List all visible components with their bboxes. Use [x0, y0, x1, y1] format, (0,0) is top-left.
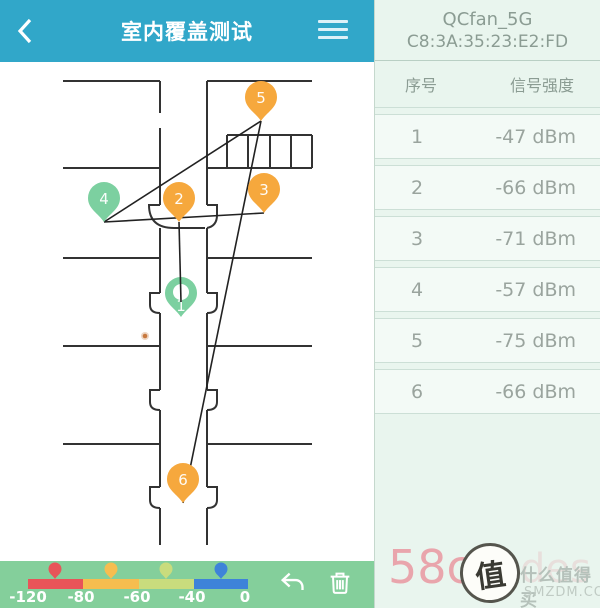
legend-pin-blue	[215, 563, 228, 580]
menu-icon[interactable]	[318, 20, 348, 42]
row-signal: -47 dBm	[495, 126, 576, 148]
map-pin-3[interactable]: 3	[248, 173, 280, 213]
row-index: 4	[411, 279, 423, 301]
row-signal: -71 dBm	[495, 228, 576, 250]
col-signal-header: 信号强度	[510, 72, 574, 96]
header-bar: 室内覆盖测试	[0, 0, 374, 62]
mac-address: C8:3A:35:23:E2:FD	[375, 31, 600, 53]
legend-pin-orange	[105, 563, 118, 580]
table-row: 3 -71 dBm	[375, 216, 600, 261]
tick--40: -40	[178, 588, 205, 606]
row-index: 3	[411, 228, 423, 250]
legend-pin-green	[160, 563, 173, 580]
row-index: 6	[411, 381, 423, 403]
map-pin-2[interactable]: 2	[163, 182, 195, 222]
tick-0: 0	[240, 588, 250, 606]
tick--60: -60	[123, 588, 150, 606]
table-header: 序号 信号强度	[375, 61, 600, 108]
staircase	[227, 135, 312, 168]
map-pin-6[interactable]: 6	[167, 463, 199, 503]
tick--120: -120	[9, 588, 47, 606]
table-row: 1 -47 dBm	[375, 114, 600, 159]
row-index: 2	[411, 177, 423, 199]
map-pin-5[interactable]: 5	[245, 81, 277, 121]
table-row: 6 -66 dBm	[375, 369, 600, 414]
map-pin-4[interactable]: 4	[88, 182, 120, 222]
floorplan-canvas: 2 3 4 5 6 1	[0, 62, 374, 561]
table-row: 4 -57 dBm	[375, 267, 600, 312]
ssid-label: QCfan_5G	[375, 9, 600, 31]
svg-text:2: 2	[174, 190, 184, 208]
row-signal: -57 dBm	[495, 279, 576, 301]
row-signal: -75 dBm	[495, 330, 576, 352]
floorplan-map[interactable]: 2 3 4 5 6 1	[0, 62, 374, 561]
row-index: 5	[411, 330, 423, 352]
legend-pin-red	[49, 563, 62, 580]
signal-legend-bar: -120 -80 -60 -40 0	[0, 561, 374, 608]
svg-text:4: 4	[99, 190, 109, 208]
svg-text:5: 5	[256, 89, 266, 107]
signal-panel: QCfan_5G C8:3A:35:23:E2:FD 序号 信号强度 1 -47…	[374, 0, 600, 608]
tick--80: -80	[67, 588, 94, 606]
table-row: 2 -66 dBm	[375, 165, 600, 210]
trash-icon[interactable]	[326, 569, 354, 597]
app-window: 室内覆盖测试	[0, 0, 600, 608]
row-signal: -66 dBm	[495, 381, 576, 403]
svg-text:6: 6	[178, 471, 188, 489]
undo-icon[interactable]	[278, 569, 306, 597]
row-signal: -66 dBm	[495, 177, 576, 199]
row-index: 1	[411, 126, 423, 148]
col-index-header: 序号	[405, 72, 437, 96]
ap-dot	[143, 334, 148, 339]
table-row: 5 -75 dBm	[375, 318, 600, 363]
svg-text:3: 3	[259, 181, 269, 199]
network-info: QCfan_5G C8:3A:35:23:E2:FD	[375, 0, 600, 61]
